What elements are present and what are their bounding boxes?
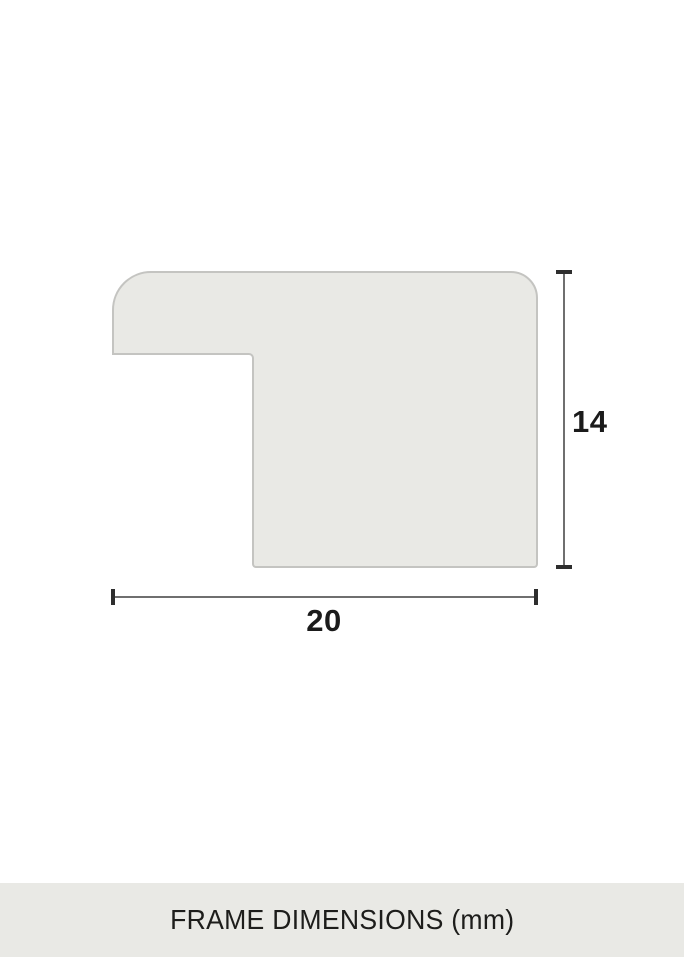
frame-profile-diagram bbox=[0, 0, 684, 957]
frame-profile-shape bbox=[113, 272, 537, 567]
height-dimension-label: 14 bbox=[572, 406, 607, 437]
width-dimension-label: 20 bbox=[294, 605, 354, 636]
caption-bar: FRAME DIMENSIONS (mm) bbox=[0, 883, 684, 957]
page: 14 20 FRAME DIMENSIONS (mm) bbox=[0, 0, 684, 957]
caption-text: FRAME DIMENSIONS (mm) bbox=[170, 904, 514, 936]
